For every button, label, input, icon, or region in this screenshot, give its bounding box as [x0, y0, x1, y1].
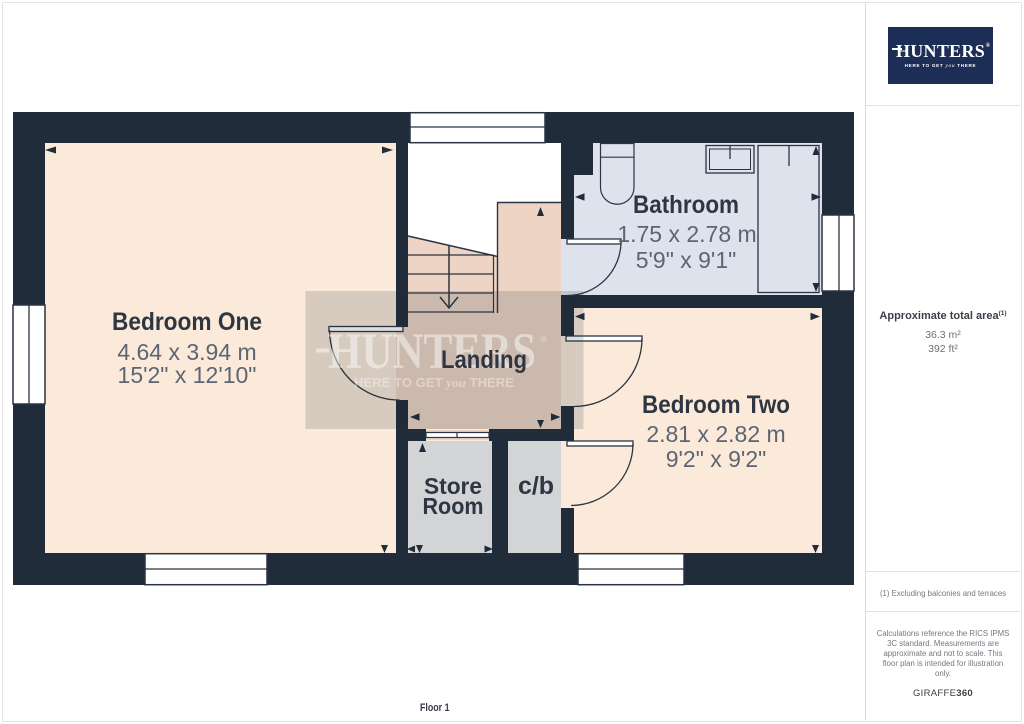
svg-text:15'2" x 12'10": 15'2" x 12'10": [118, 362, 257, 388]
svg-text:2.81 x 2.82 m: 2.81 x 2.82 m: [646, 421, 785, 447]
svg-text:®: ®: [540, 334, 547, 344]
svg-text:5'9" x 9'1": 5'9" x 9'1": [636, 247, 737, 273]
svg-text:1.75 x 2.78 m: 1.75 x 2.78 m: [617, 221, 756, 247]
svg-text:c/b: c/b: [518, 472, 554, 500]
svg-text:Bathroom: Bathroom: [633, 191, 739, 219]
svg-text:Bedroom Two: Bedroom Two: [642, 391, 790, 419]
svg-text:Room: Room: [423, 493, 484, 519]
svg-text:Bedroom One: Bedroom One: [112, 308, 262, 336]
svg-text:9'2" x 9'2": 9'2" x 9'2": [666, 446, 767, 472]
svg-text:HERE TO GET you THERE: HERE TO GET you THERE: [354, 376, 514, 390]
svg-text:Landing: Landing: [441, 346, 527, 374]
svg-text:Floor 1: Floor 1: [420, 702, 450, 714]
